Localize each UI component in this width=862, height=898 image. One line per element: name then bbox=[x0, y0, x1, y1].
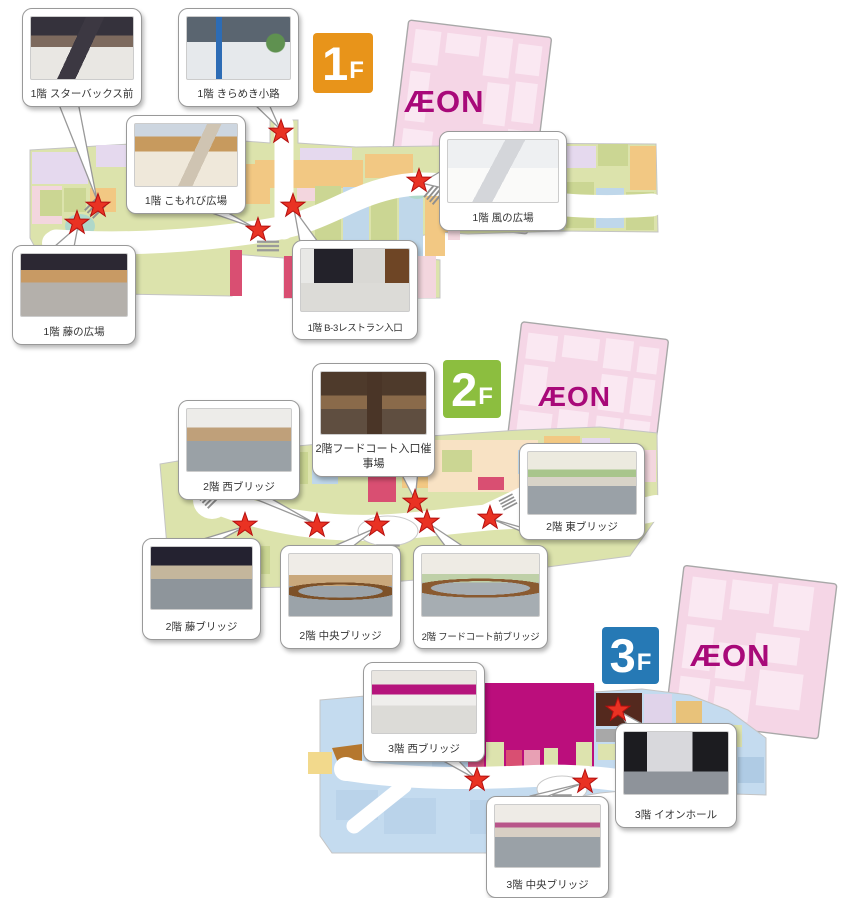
floor-badge-1f: 1F bbox=[313, 33, 373, 93]
callout-label: 1階 藤の広場 bbox=[13, 324, 135, 339]
photo-2f-foodcourt-mae-bridge bbox=[421, 553, 540, 617]
aeon-logo-1f: ÆON bbox=[404, 84, 485, 119]
photo-2f-nishi-bridge bbox=[186, 408, 292, 472]
callout-label: 1階 風の広場 bbox=[440, 210, 566, 225]
photo-2f-foodcourt-iriguchi bbox=[320, 371, 427, 435]
callout-3f-nishi-bridge: 3階 西ブリッジ bbox=[363, 662, 485, 762]
photo-1f-fuji-no-hiroba bbox=[20, 253, 128, 317]
photo-1f-kaze-no-hiroba bbox=[447, 139, 559, 203]
mall-floor-guide: ÆON bbox=[0, 0, 862, 898]
photo-3f-aeon-hall bbox=[623, 731, 729, 795]
callout-label: 3階 イオンホール bbox=[616, 807, 736, 822]
photo-3f-chuo-bridge bbox=[494, 804, 601, 868]
callout-label: 3階 中央ブリッジ bbox=[487, 877, 608, 892]
floor-badge-1f-letter: F bbox=[349, 57, 364, 85]
callout-label: 2階 西ブリッジ bbox=[179, 479, 299, 494]
floor-badge-2f: 2F bbox=[443, 360, 501, 418]
photo-1f-b3-restaurant bbox=[300, 248, 410, 312]
callout-1f-b3-restaurant: 1階 B-3レストラン入口 bbox=[292, 240, 418, 340]
floor-badge-2f-number: 2 bbox=[451, 366, 477, 413]
photo-1f-kirameki-koji bbox=[186, 16, 291, 80]
callout-1f-kaze-no-hiroba: 1階 風の広場 bbox=[439, 131, 567, 231]
callout-label: 2階フードコート入口催事場 bbox=[313, 442, 434, 472]
aeon-logo-3f: ÆON bbox=[690, 638, 771, 673]
callout-label: 2階 中央ブリッジ bbox=[281, 628, 400, 643]
callout-2f-fuji-bridge: 2階 藤ブリッジ bbox=[142, 538, 261, 640]
callout-1f-fuji-no-hiroba: 1階 藤の広場 bbox=[12, 245, 136, 345]
callout-label: 2階 フードコート前ブリッジ bbox=[414, 629, 547, 643]
photo-2f-fuji-bridge bbox=[150, 546, 253, 610]
callout-1f-starbucks-mae: 1階 スターバックス前 bbox=[22, 8, 142, 107]
floor-badge-1f-number: 1 bbox=[322, 40, 348, 87]
floor-badge-3f-letter: F bbox=[637, 649, 652, 677]
callout-2f-higashi-bridge: 2階 東ブリッジ bbox=[519, 443, 645, 540]
floor-badge-3f-number: 3 bbox=[610, 632, 636, 679]
photo-2f-chuo-bridge bbox=[288, 553, 393, 617]
photo-1f-komorebi-hiroba bbox=[134, 123, 238, 187]
callout-label: 3階 西ブリッジ bbox=[364, 741, 484, 756]
callout-2f-foodcourt-iriguchi: 2階フードコート入口催事場 bbox=[312, 363, 435, 477]
floor-badge-2f-letter: F bbox=[478, 383, 493, 411]
callout-label: 1階 きらめき小路 bbox=[179, 86, 298, 101]
photo-1f-starbucks-mae bbox=[30, 16, 134, 80]
callout-1f-kirameki-koji: 1階 きらめき小路 bbox=[178, 8, 299, 107]
callout-3f-aeon-hall: 3階 イオンホール bbox=[615, 723, 737, 828]
floor-badge-3f: 3F bbox=[602, 627, 659, 684]
callout-label: 1階 スターバックス前 bbox=[23, 86, 141, 101]
aeon-logo-2f: ÆON bbox=[538, 381, 611, 412]
callout-label: 2階 東ブリッジ bbox=[520, 519, 644, 534]
photo-2f-higashi-bridge bbox=[527, 451, 637, 515]
callout-label: 1階 B-3レストラン入口 bbox=[293, 320, 417, 334]
callout-2f-foodcourt-mae-bridge: 2階 フードコート前ブリッジ bbox=[413, 545, 548, 649]
callout-2f-nishi-bridge: 2階 西ブリッジ bbox=[178, 400, 300, 500]
callout-2f-chuo-bridge: 2階 中央ブリッジ bbox=[280, 545, 401, 649]
callout-label: 2階 藤ブリッジ bbox=[143, 619, 260, 634]
callout-3f-chuo-bridge: 3階 中央ブリッジ bbox=[486, 796, 609, 898]
callout-label: 1階 こもれび広場 bbox=[127, 193, 245, 208]
photo-3f-nishi-bridge bbox=[371, 670, 477, 734]
callout-1f-komorebi-hiroba: 1階 こもれび広場 bbox=[126, 115, 246, 214]
